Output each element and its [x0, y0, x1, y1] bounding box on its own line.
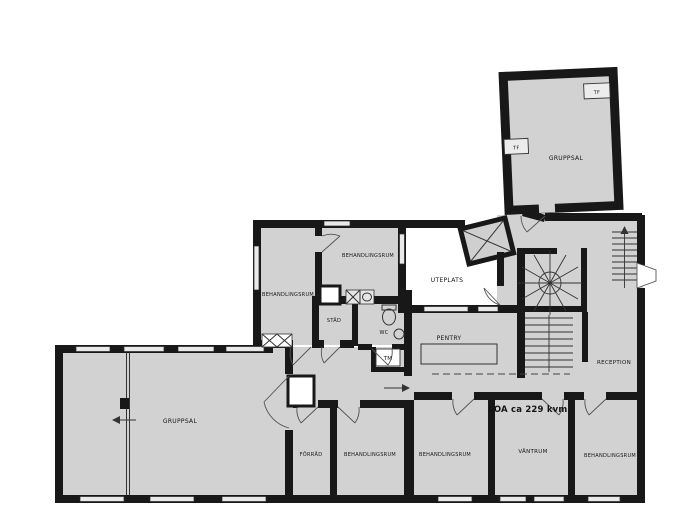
room-label-gruppsal-main: GRUPPSAL [163, 418, 198, 425]
tf-label-east: TF [593, 90, 601, 96]
room-label-behandlingsrum-south-1: BEHANDLINGSRUM [344, 452, 396, 458]
room-label-reception: RECEPTION [597, 360, 631, 366]
room-label-behandlingsrum-southeast: BEHANDLINGSRUM [584, 453, 636, 459]
void-shaft-stad [320, 286, 340, 304]
room-label-gruppsal-upper: GRUPPSAL [549, 155, 584, 162]
room-label-pentry: PENTRY [437, 335, 462, 342]
room-label-vantrum: VÄNTRUM [518, 448, 547, 455]
room-label-wc: WC [379, 330, 388, 336]
room-label-behandlingsrum-north: BEHANDLINGSRUM [342, 253, 394, 259]
fixture-label-tm: TM [383, 356, 393, 362]
room-label-behandlingsrum-south-2: BEHANDLINGSRUM [419, 452, 471, 458]
floorplan-canvas: TF TF [0, 0, 674, 530]
void-shaft-corridor [288, 376, 314, 406]
tf-label-west: TF [512, 145, 520, 151]
room-label-behandlingsrum-west: BEHANDLINGSRUM [262, 292, 314, 298]
floorplan-page: TF TF [0, 0, 674, 530]
crossed-shaft-box [460, 218, 513, 264]
area-note: LOA ca 229 kvm [489, 405, 568, 415]
entrance-door-wedge [637, 263, 656, 288]
room-label-stad: STÄD [327, 317, 341, 324]
upper-gruppsal-room: TF TF [501, 72, 619, 215]
room-label-uteplats: UTEPLATS [431, 277, 463, 284]
room-label-forrad: FÖRRÅD [300, 451, 323, 458]
